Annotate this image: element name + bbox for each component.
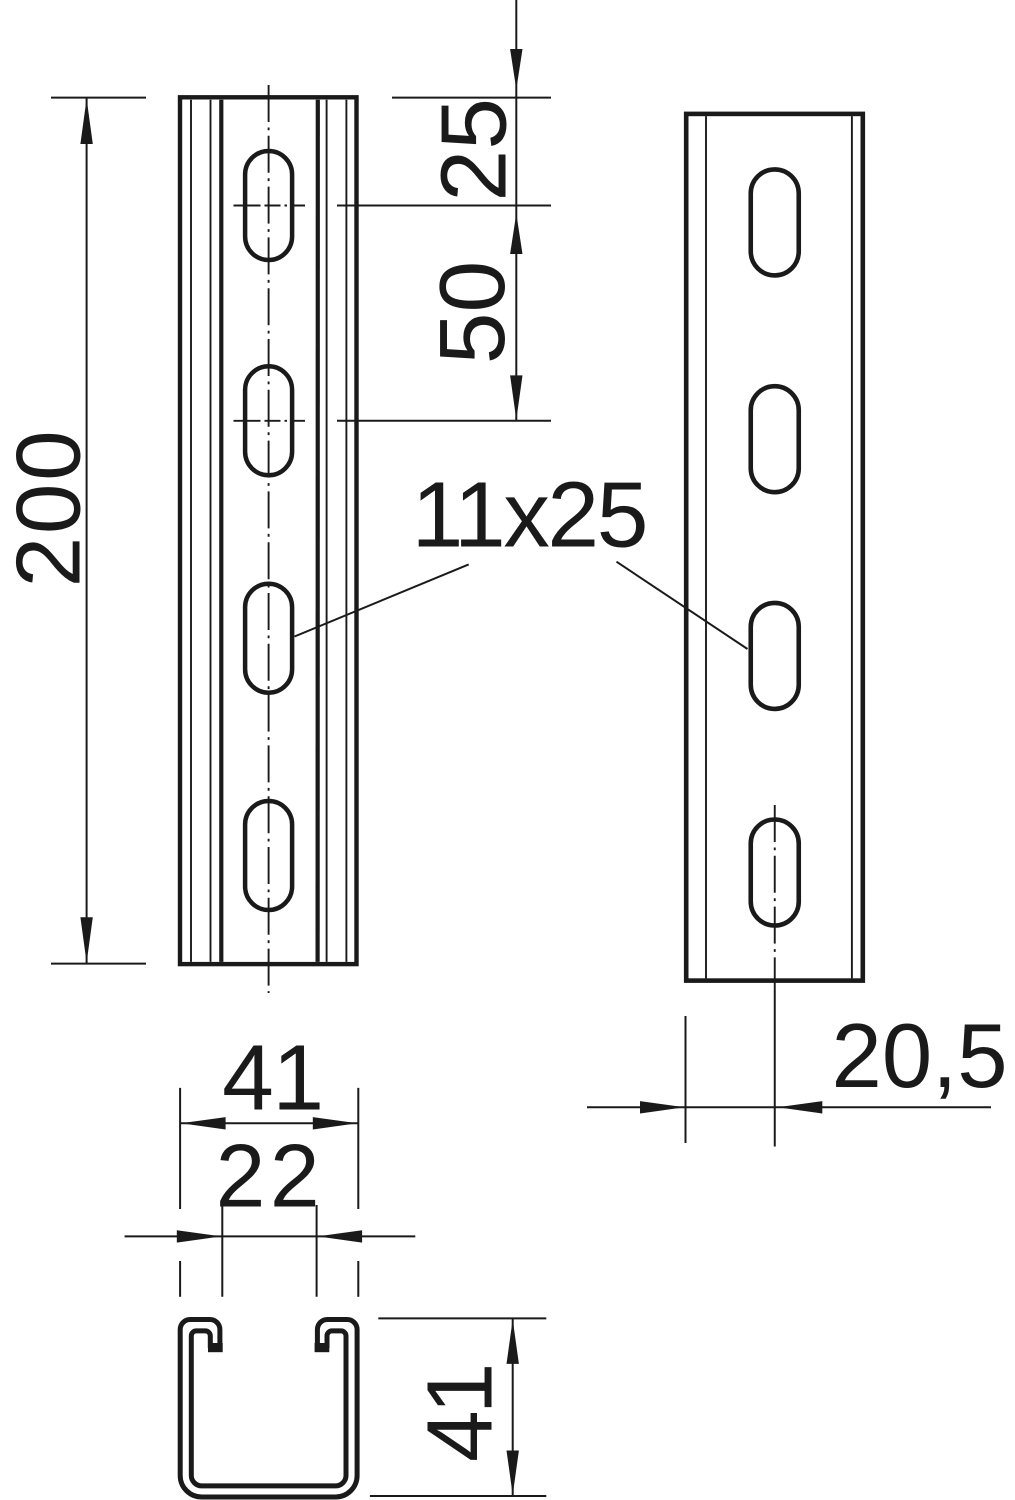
svg-text:200: 200	[0, 428, 99, 588]
svg-text:41: 41	[408, 1366, 512, 1462]
svg-text:11x25: 11x25	[412, 463, 646, 567]
svg-text:25: 25	[421, 98, 525, 201]
svg-text:22: 22	[216, 1126, 325, 1226]
svg-text:20,5: 20,5	[832, 1006, 1008, 1107]
svg-text:50: 50	[420, 261, 524, 364]
svg-text:41: 41	[222, 1025, 322, 1129]
